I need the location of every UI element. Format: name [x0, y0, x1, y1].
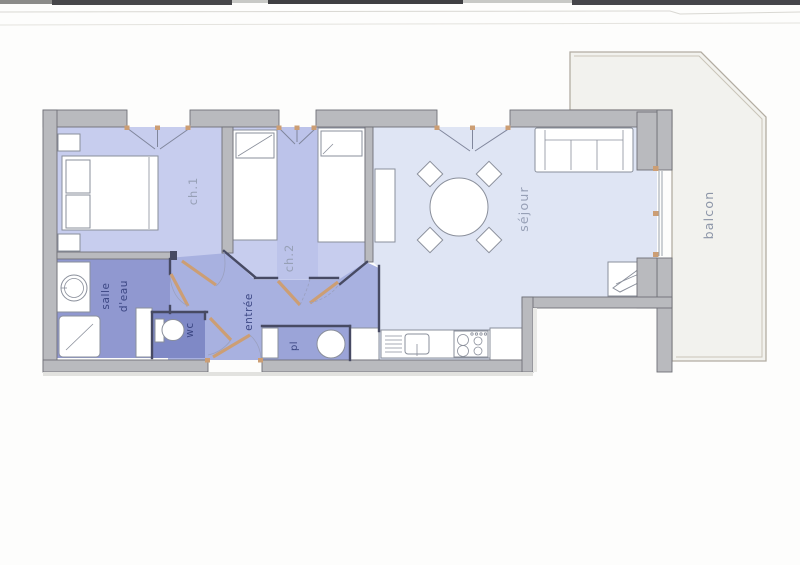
- nightstand: [58, 134, 80, 151]
- scan-bar-segment: [0, 0, 52, 4]
- hinge-mark: [312, 126, 317, 131]
- toilet-bowl: [162, 320, 184, 341]
- scan-bar-segment: [52, 0, 232, 5]
- scan-bar-segment: [268, 0, 463, 4]
- pillow: [66, 195, 90, 228]
- sejour-bottom-wall: [522, 297, 672, 308]
- right-wall: [657, 110, 672, 170]
- sofa: [535, 128, 633, 172]
- appliance: [490, 328, 522, 360]
- label-wc: wc: [184, 322, 196, 338]
- appliance: [350, 328, 379, 360]
- right-wall: [657, 258, 672, 372]
- balcony-door-pillar: [637, 112, 657, 170]
- left-wall: [43, 110, 57, 372]
- pillow: [321, 131, 362, 156]
- hinge-mark: [470, 126, 475, 131]
- bottom-wall: [43, 360, 208, 372]
- utility-niche: [136, 308, 152, 357]
- bottom-wall: [262, 360, 533, 372]
- hinge-mark: [155, 126, 160, 131]
- hinge-mark: [435, 126, 440, 131]
- hinge-mark: [295, 126, 300, 131]
- round-table: [430, 178, 488, 236]
- label-sejour: séjour: [516, 186, 531, 232]
- ch2-sejour-wall: [365, 127, 373, 262]
- balcony-door-glazing: [659, 171, 662, 256]
- label-ch1: ch.1: [186, 177, 200, 206]
- top-wall: [316, 110, 437, 127]
- ch1-ch2-wall: [222, 127, 233, 253]
- label-ch2: ch.2: [282, 244, 296, 273]
- nightstand: [58, 234, 80, 251]
- floor-plan-page: ch.1 ch.2 séjour balcon salle d'eau wc e…: [0, 0, 800, 565]
- paper-fold-line: [0, 11, 800, 14]
- scan-bar-segment: [572, 0, 800, 5]
- placard-door: [262, 328, 278, 358]
- water-heater: [317, 330, 345, 358]
- hinge-mark: [258, 358, 263, 363]
- hinge-mark: [186, 126, 191, 131]
- floor-plan: ch.1 ch.2 séjour balcon salle d'eau wc e…: [0, 0, 800, 565]
- notch-wall: [522, 297, 533, 372]
- hinge-mark: [506, 126, 511, 131]
- kitchen: [350, 328, 522, 360]
- label-salle-deau-line2: d'eau: [118, 280, 130, 312]
- pillow: [66, 160, 90, 193]
- sideboard: [375, 169, 395, 242]
- label-salle-deau-line1: salle: [100, 282, 112, 309]
- ch1-bottom-wall: [57, 252, 176, 259]
- top-wall: [190, 110, 279, 127]
- hinge-mark: [653, 252, 659, 257]
- hinge-mark: [277, 126, 282, 131]
- hinge-mark: [653, 166, 659, 171]
- hinge-mark: [125, 126, 130, 131]
- hinge-mark: [205, 358, 210, 363]
- wall-shadow: [533, 308, 537, 372]
- paper-fold-line: [0, 23, 800, 25]
- hinge-mark: [653, 211, 659, 216]
- wall-shadow: [43, 372, 533, 376]
- label-balcon: balcon: [701, 191, 716, 240]
- label-entree: entrée: [243, 293, 255, 331]
- label-placard: pl: [289, 341, 300, 351]
- scan-edge-artifacts: [0, 0, 800, 25]
